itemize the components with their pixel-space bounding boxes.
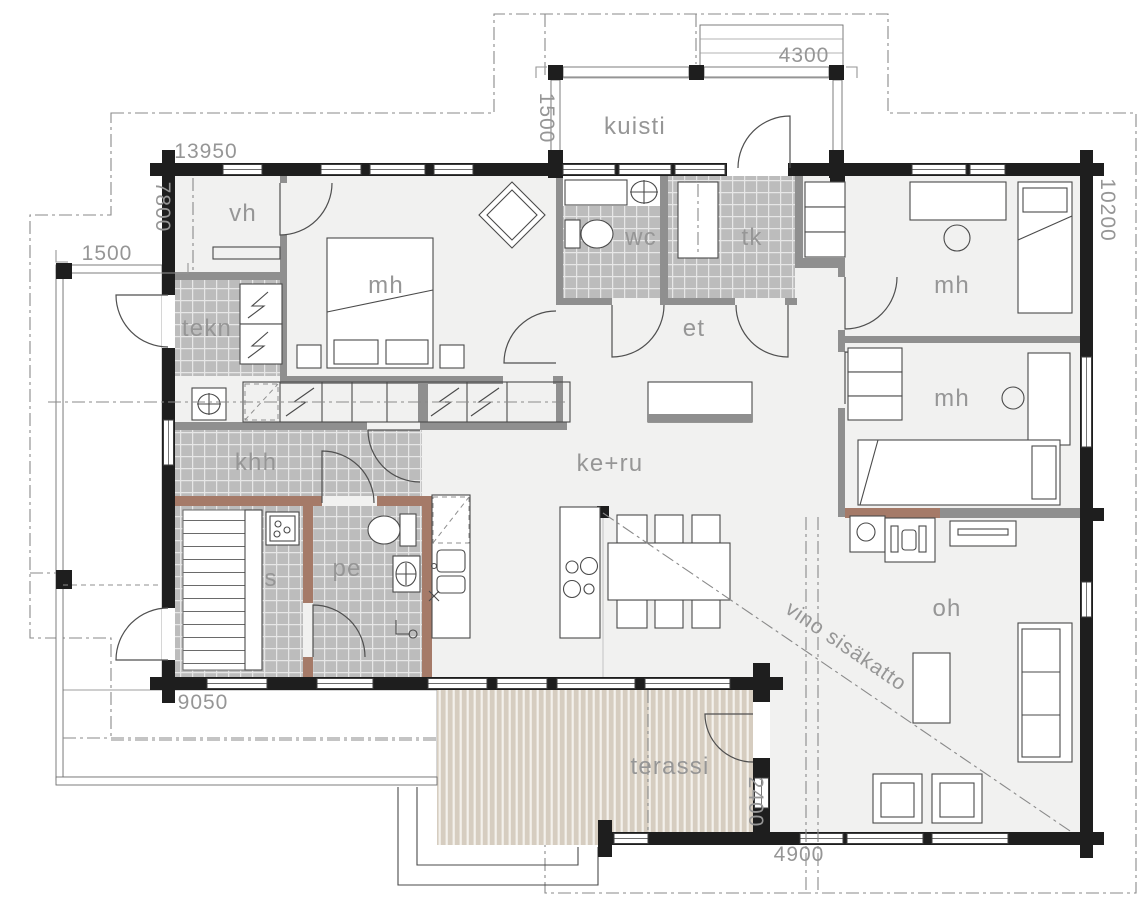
room-label-wc: wc [624, 224, 657, 251]
dining-set [608, 515, 730, 628]
desk-icon [910, 182, 1006, 220]
room-label-pe: pe [332, 555, 361, 582]
room-label-mh-ne: mh [934, 272, 970, 299]
desk-icon [1028, 353, 1070, 445]
khh-floor [175, 430, 422, 496]
sauna-stove-icon [266, 512, 299, 545]
room-label-kuisti: kuisti [604, 113, 666, 140]
room-label-et: et [683, 315, 705, 342]
sofa-icon [1018, 623, 1072, 762]
terassi-door-opening [753, 702, 770, 758]
dimension-porch-width: 4300 [779, 44, 830, 67]
hall-sideboard [648, 382, 752, 422]
dimension-right-height: 10200 [1096, 178, 1119, 241]
bottom-terrace-deck [63, 690, 437, 777]
dimension-terassi-width: 4900 [774, 843, 825, 866]
room-label-mh-nw: mh [368, 272, 404, 299]
coffee-table-icon [913, 653, 950, 723]
room-label-s: s [264, 565, 277, 592]
tv-stand-icon [950, 521, 1016, 546]
desk-icon [885, 518, 935, 562]
kitchen-counter [432, 495, 470, 638]
room-label-tk: tk [741, 224, 762, 251]
single-bed-icon [1018, 182, 1072, 313]
armchair-icon [873, 774, 922, 823]
dimension-top-width: 13950 [174, 140, 237, 163]
tekn-terrace-door [116, 295, 168, 347]
room-label-vh: vh [229, 200, 257, 227]
terrace-door-opening [162, 608, 175, 660]
dining-table-icon [608, 543, 730, 600]
room-label-tekn: tekn [182, 315, 232, 342]
porch-door-opening [727, 163, 788, 176]
dimension-deck-width: 9050 [178, 691, 229, 714]
dimension-porch-depth: 1500 [535, 93, 558, 144]
room-label-khh: khh [235, 449, 277, 476]
room-label-oh: oh [932, 595, 961, 622]
terrace-door [116, 608, 168, 660]
technical-cabinet-icon [240, 284, 282, 364]
dimension-left-height: 7800 [151, 182, 174, 233]
room-label-keru: ke+ru [577, 450, 644, 477]
toilet-icon [400, 514, 416, 546]
porch-entry-door [738, 116, 790, 168]
terrace-door-opening [162, 295, 175, 348]
dimension-terassi-depth: 2400 [744, 777, 767, 828]
floor-plan-drawing: vh mh wc tk mh tekn et khh mh ke+ru s pe… [0, 0, 1143, 900]
porch-post [689, 65, 704, 80]
railing-post [56, 570, 72, 589]
porch-post [548, 65, 563, 80]
office-chair-icon [850, 516, 885, 552]
dimension-terrace-width: 1500 [82, 242, 133, 265]
single-bed-icon [858, 440, 1060, 505]
floor-plan: vh mh wc tk mh tekn et khh mh ke+ru s pe… [0, 0, 1143, 900]
room-label-mh-e: mh [934, 385, 970, 412]
porch-railing [563, 67, 689, 77]
washing-machine-icon [192, 388, 226, 420]
toilet-icon [565, 220, 580, 248]
porch-post [829, 65, 844, 80]
sauna-bench-icon [183, 510, 245, 670]
railing-post [56, 263, 72, 279]
room-label-terassi: terassi [630, 753, 709, 780]
